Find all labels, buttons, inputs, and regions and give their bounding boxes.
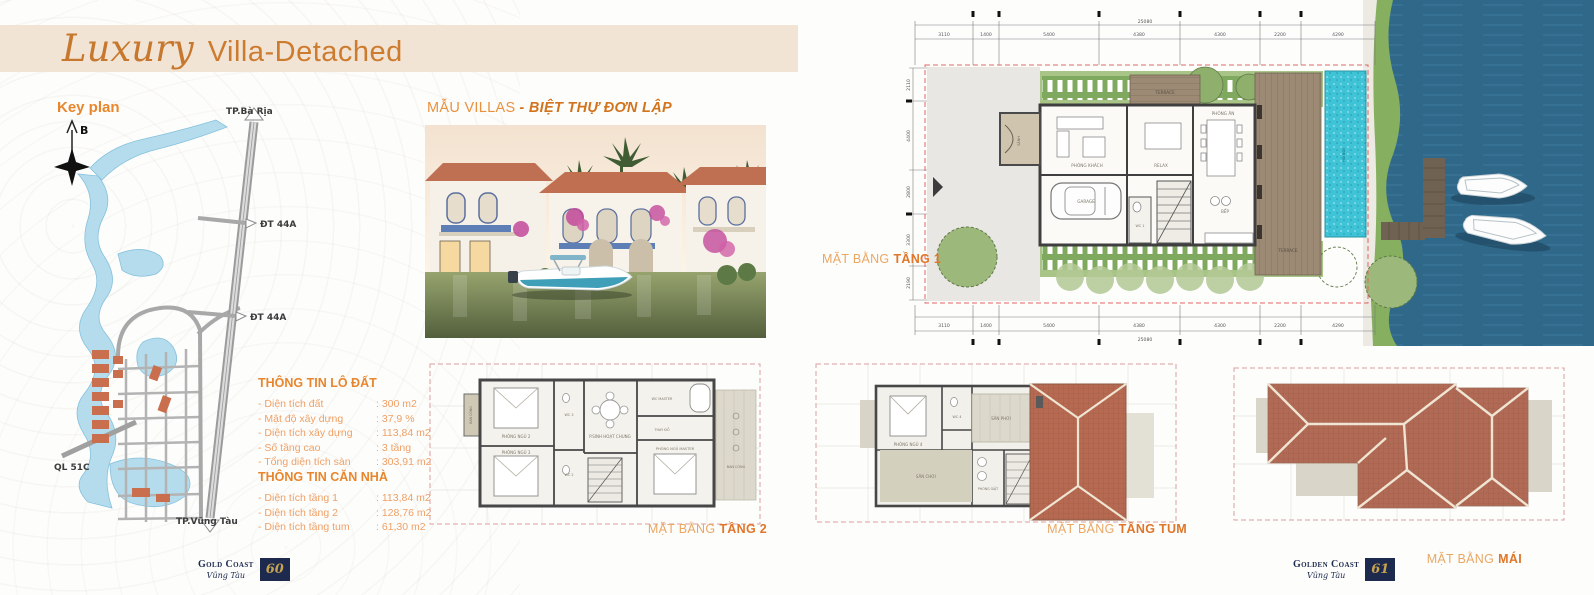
tree-large-left (937, 227, 997, 287)
dim: 4380 (1133, 323, 1145, 329)
ledge-right (1126, 413, 1154, 498)
compass-label: B (80, 124, 88, 137)
room-label-play: SÂN CHƠI (916, 474, 936, 479)
room-label-wc4: WC 4 (953, 415, 962, 419)
room-label-wc3: WC 3 (565, 413, 574, 417)
grid-ticks-top (972, 11, 1303, 17)
dim: 5400 (1043, 32, 1055, 38)
room-label-master: PHÒNG NGỦ MASTER (656, 446, 695, 451)
caption-bold: TẦNG 1 (893, 252, 941, 266)
room-label-terrace-top: TERRACE (1154, 90, 1175, 95)
caption-bold: TẦNG 2 (719, 522, 767, 536)
dim: 2800 (906, 186, 912, 198)
room-label-balcony-right: BAN CÔNG (727, 464, 746, 469)
dim: 2110 (906, 79, 912, 91)
caption-bold: TẦNG TUM (1119, 522, 1187, 536)
caption-prefix: MẶT BẰNG (1047, 522, 1114, 536)
page-number-badge: 61 (1365, 558, 1395, 581)
villa-center (539, 172, 693, 277)
room-label-wc2: WC 2 (565, 473, 574, 477)
page-title: Villa-Detached (208, 36, 403, 69)
room-label-bed4: PHÒNG NGỦ 4 (894, 442, 923, 447)
spur-arrow-2 (236, 312, 246, 321)
stairs-tum (1006, 454, 1033, 504)
room-label-pool: HỒ BƠI (1341, 148, 1346, 162)
dim: 2200 (1274, 323, 1286, 329)
dim: 2190 (906, 277, 912, 289)
caption-prefix: MẶT BẰNG (648, 522, 715, 536)
tum-roof (1030, 384, 1126, 520)
room-label-kitchen: BẾP (1221, 208, 1230, 214)
villa-left (425, 163, 553, 275)
map-label-baria: TP.Bà Rịa (226, 107, 273, 117)
info-label: - Diện tích tầng 2 (258, 506, 376, 521)
dim: 4380 (1133, 32, 1145, 38)
header-band: Luxury Villa-Detached (0, 25, 798, 72)
room-label-dressing: THAY ĐỒ (653, 427, 669, 432)
room-label-dining: PHÒNG ĂN (1212, 111, 1235, 116)
footer-place: Vũng Tàu (207, 572, 245, 580)
room-label-bed2: PHÒNG NGỦ 2 (502, 434, 531, 439)
dim: 4290 (1332, 32, 1344, 38)
floorplan-level1: 25080 3110 1400 5400 4380 4300 2200 4290… (905, 5, 1385, 350)
dim-total-top: 25080 (1138, 19, 1153, 25)
info-value: : 37,9 % (376, 412, 415, 427)
info-label: - Diện tích đất (258, 397, 376, 412)
room-label-garage: GARAGE (1077, 199, 1095, 204)
room-label-hall: SẢNH (1016, 136, 1021, 146)
info-value: : 61,30 m2 (376, 520, 426, 535)
room-label-laundry: PHÒNG GIẶT (978, 486, 998, 491)
brochure-page: Luxury Villa-Detached Key plan (0, 0, 1594, 595)
footer-place: Vũng Tàu (1307, 572, 1345, 580)
terrace-right-deck (1255, 73, 1321, 275)
room-label-wcmaster: WC MASTER (652, 397, 673, 401)
map-label-vungtau: TP.Vũng Tàu (176, 517, 238, 527)
info-value: : 3 tầng (376, 441, 411, 456)
room-label-wc1: WC 1 (1136, 224, 1145, 228)
room-label-bed3: PHÒNG NGỦ 3 (502, 450, 531, 455)
info-label: - Mật độ xây dựng (258, 412, 376, 427)
roof-right (1456, 388, 1528, 506)
villa-subtitle-text: - BIỆT THỰ ĐƠN LẬP (519, 100, 672, 116)
stairs (1157, 181, 1191, 243)
footer-left: Gold Coast Vũng Tàu 60 (198, 558, 290, 581)
dim: 5400 (1043, 323, 1055, 329)
dim: 4400 (906, 130, 912, 142)
info-label: - Diện tích tầng 1 (258, 491, 376, 506)
info-value: : 300 m2 (376, 397, 417, 412)
map-label-dt44a-1: ĐT 44A (260, 220, 296, 230)
floorplan-tum: PHÒNG NGỦ 4 WC 4 SÂN PHƠI SÂN CHƠI PHÒNG… (808, 358, 1186, 533)
dim: 4290 (1332, 323, 1344, 329)
dim: 3300 (906, 234, 912, 246)
room-label-relax: RELAX (1154, 163, 1168, 168)
footer-brand: Gold Coast (198, 560, 254, 570)
footer-brand: Golden Coast (1293, 560, 1359, 570)
roofplan (1208, 358, 1588, 548)
villa-photo (425, 125, 766, 338)
dim: 2200 (1274, 32, 1286, 38)
floorplan-level2: PHÒNG NGỦ 2 PHÒNG NGỦ 3 WC 3 WC 2 P.SINH… (422, 358, 767, 533)
room-label-living: PHÒNG KHÁCH (1071, 163, 1102, 168)
caption-prefix: MẶT BẰNG (1427, 552, 1494, 566)
info-label: - Diện tích xây dựng (258, 426, 376, 441)
waterfront (1363, 0, 1594, 346)
villa-right (677, 167, 766, 277)
bed4 (890, 396, 926, 436)
page-title-script: Luxury (62, 25, 194, 72)
room-label-terrace-right: TERRACE (1277, 248, 1298, 253)
dim: 1400 (980, 32, 992, 38)
info-label: - Tổng diện tích sàn (258, 455, 376, 470)
dim: 4300 (1214, 32, 1226, 38)
dim-total-bottom: 25080 (1138, 337, 1153, 343)
dim: 4300 (1214, 323, 1226, 329)
caption-prefix: MẶT BẰNG (822, 252, 889, 266)
dim: 3110 (938, 323, 950, 329)
map-label-ql51c: QL 51C (54, 463, 90, 473)
dim: 3110 (938, 32, 950, 38)
villa-section-title: MẪU VILLAS- BIỆT THỰ ĐƠN LẬP (427, 100, 672, 116)
dims-top (915, 21, 1375, 65)
info-label: - Số tầng cao (258, 441, 376, 456)
footer-right: Golden Coast Vũng Tàu 61 (1293, 558, 1395, 581)
caption-floor2: MẶT BẰNGTẦNG 2 (545, 522, 767, 536)
room-label-balcony-left: BAN CÔNG (468, 406, 473, 424)
page-number-badge: 60 (260, 558, 290, 581)
spur-arrow-1 (246, 219, 256, 228)
room-label-common: P.SINH HOẠT CHUNG (589, 434, 630, 439)
stairs-l2 (588, 458, 622, 502)
info-label: - Diện tích tầng tum (258, 520, 376, 535)
dims-bottom (915, 305, 1375, 335)
caption-floor1: MẶT BẰNGTẦNG 1 (822, 252, 941, 266)
dim: 1400 (980, 323, 992, 329)
caption-tum: MẶT BẰNGTẦNG TUM (965, 522, 1187, 536)
map-label-dt44a-2: ĐT 44A (250, 313, 286, 323)
villa-title-text: MẪU VILLAS (427, 100, 515, 116)
caption-bold: MÁI (1498, 552, 1522, 566)
house-level2 (480, 380, 714, 506)
room-label-drying: SÂN PHƠI (991, 416, 1011, 421)
